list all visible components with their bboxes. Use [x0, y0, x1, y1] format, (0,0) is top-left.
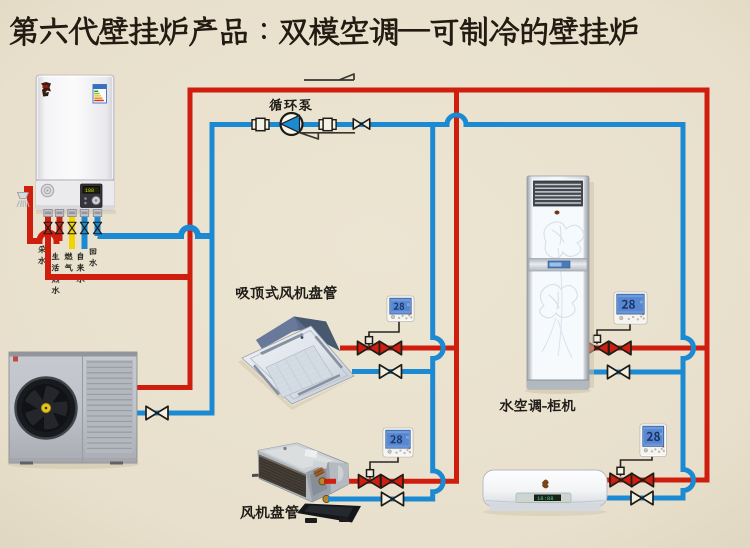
svg-text:188: 188: [85, 188, 94, 194]
svg-text:18:88: 18:88: [537, 495, 554, 502]
